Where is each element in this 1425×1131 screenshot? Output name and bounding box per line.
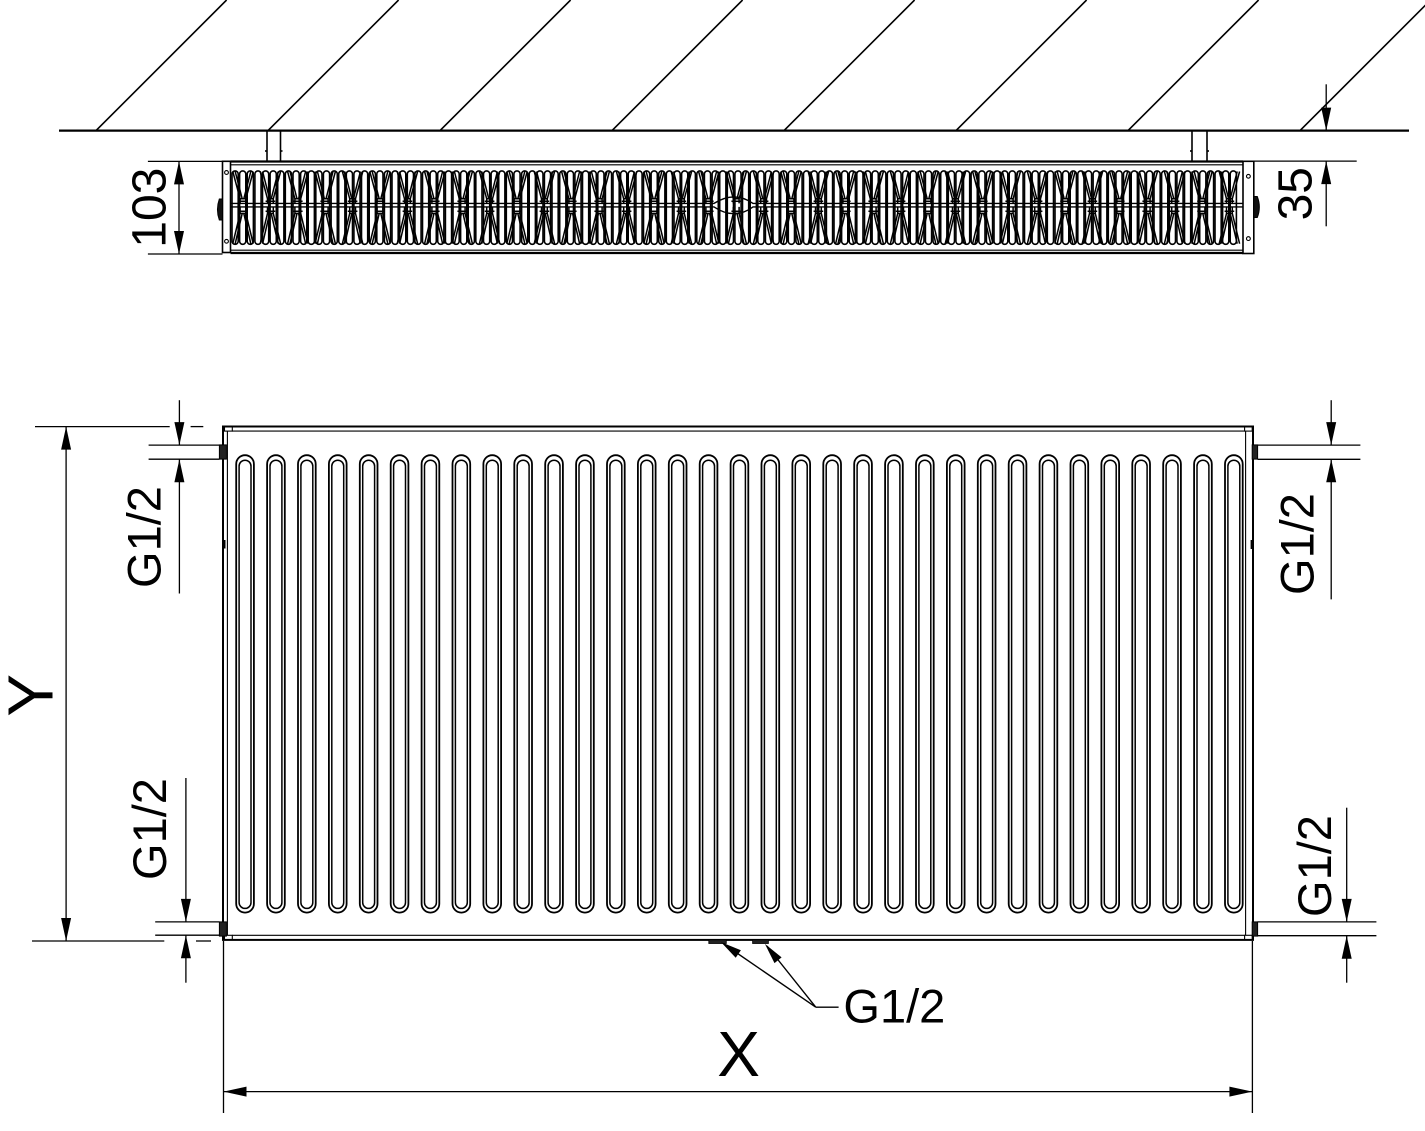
svg-text:X: X <box>717 1018 760 1090</box>
svg-text:G1/2: G1/2 <box>117 486 170 588</box>
svg-text:G1/2: G1/2 <box>123 778 176 880</box>
svg-text:103: 103 <box>124 168 177 248</box>
svg-text:G1/2: G1/2 <box>843 980 945 1033</box>
svg-text:35: 35 <box>1270 167 1323 220</box>
svg-text:G1/2: G1/2 <box>1288 815 1341 917</box>
svg-text:Y: Y <box>0 674 67 717</box>
svg-text:G1/2: G1/2 <box>1271 493 1324 595</box>
